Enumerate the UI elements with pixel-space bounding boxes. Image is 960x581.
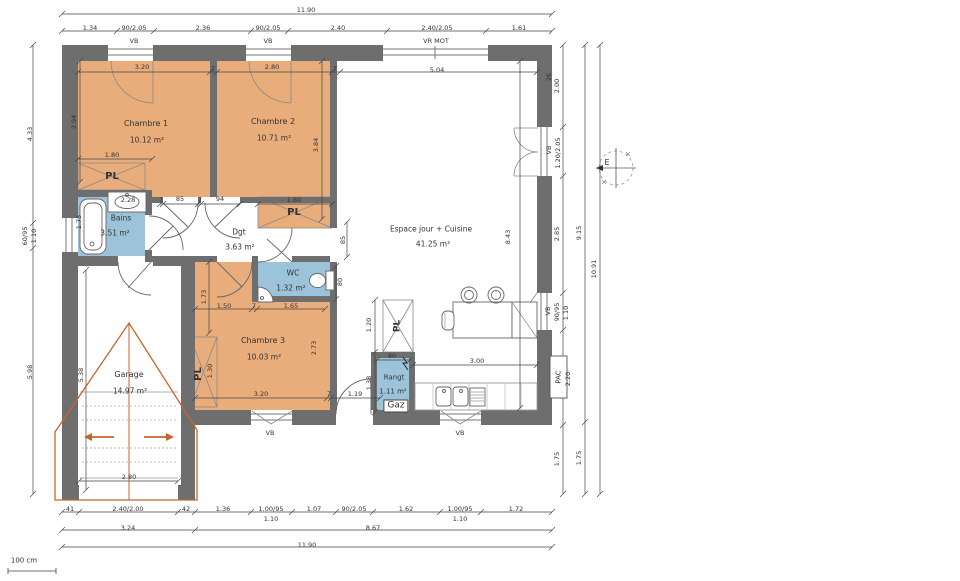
dim-wall7: 7 (211, 66, 215, 73)
dim-right-total: 10.91 (591, 260, 598, 279)
room-area-bains: 3.51 m² (100, 229, 129, 237)
dim-interior: 1.20 (366, 318, 373, 332)
dim-top: 2.36 (196, 25, 210, 32)
dim-interior: 3.00 (470, 358, 484, 365)
floor-plan-drawing (0, 0, 960, 581)
room-area-espace-jour: 41.25 m² (416, 240, 450, 248)
dim-bottom-door: 90/2.05 (342, 506, 367, 513)
toilet-tank (326, 271, 334, 290)
dim-right: 1.75 (554, 452, 561, 466)
dim-interior: 85 (340, 236, 347, 244)
dim-interior: 1.80 (287, 197, 301, 204)
dim-wall7: 7 (252, 303, 256, 310)
bar-stool (488, 287, 504, 303)
dim-right: 2.85 (554, 227, 561, 241)
dim-door: 94 (216, 196, 224, 203)
dim-interior: 1.19 (348, 391, 362, 398)
dim-top-window2: 90/2.05 (256, 25, 281, 32)
room-label-dgt: Dgt (232, 228, 245, 236)
bar-stool (461, 287, 477, 303)
dim-interior: 80 (388, 353, 396, 360)
dim-total-bottom: 11.90 (298, 542, 317, 549)
dim-interior: 80 (337, 278, 344, 286)
dim-wall26: 26 (546, 73, 553, 81)
dim-left-sill: 1.10 (31, 229, 38, 243)
room-label-chambre1: Chambre 1 (124, 120, 168, 128)
arrow-right-icon (166, 433, 174, 441)
dim-left: 5.98 (27, 365, 34, 379)
dim-bottom: 1.36 (216, 506, 230, 513)
dim-interior: 8.43 (505, 230, 512, 244)
compass-icon (596, 148, 636, 188)
dim-total-top: 11.90 (297, 7, 316, 14)
dim-interior: 2.94 (71, 115, 78, 129)
dim-top-window1: 90/2.05 (122, 25, 147, 32)
closet-label-pl3: PL (194, 367, 204, 381)
dim-interior: 1.50 (217, 303, 231, 310)
dim-bottom-garage-door: 2.40/2.00 (112, 506, 143, 513)
dim-interior: 1.80 (105, 152, 119, 159)
dim-interior: 1.65 (284, 303, 298, 310)
dim-interior: 1.38 (366, 376, 373, 390)
dim-bottom: 42 (182, 506, 190, 513)
closet-label-pl-entry: PL (394, 320, 403, 332)
dim-interior: 2.28 (121, 197, 135, 204)
closet-label-pl2: PL (287, 208, 301, 218)
dim-right: 1.75 (576, 451, 583, 465)
dim-interior: 3.84 (313, 138, 320, 152)
dim-wall7: 7 (333, 66, 337, 73)
room-label-rangt: Rangt (384, 375, 405, 382)
chair (442, 311, 454, 330)
dim-interior: 3.20 (135, 64, 149, 71)
dim-bottom-window: 1.00/95 (448, 506, 473, 513)
dim-wall7: 7 (198, 197, 202, 204)
dim-interior: 2.73 (311, 341, 318, 355)
scale-bar (8, 568, 56, 574)
dim-interior: 2.80 (265, 64, 279, 71)
dim-wall7: 7 (327, 391, 331, 398)
dim-bottom: 1.62 (399, 506, 413, 513)
compass-east-label: E (604, 159, 609, 167)
window-label-vrmot: VR MOT (423, 38, 449, 45)
pac-label: PAC (556, 370, 563, 383)
dim-interior: 1.73 (201, 290, 208, 304)
dim-interior: 1.30 (207, 364, 214, 378)
dim-door: 85 (176, 196, 184, 203)
window-label-vb1: VB (130, 38, 139, 45)
room-area-garage: 14.97 m² (113, 387, 147, 395)
closet-label-pl1: PL (105, 172, 119, 182)
window-label-vb-sejour: VB (546, 146, 553, 155)
dim-bottom-sill: 1.10 (264, 516, 278, 523)
room-area-chambre1: 10.12 m² (130, 136, 164, 144)
room-area-dgt: 3.63 m² (225, 243, 254, 251)
dim-bottom: 41 (66, 506, 74, 513)
kitchen-island (453, 302, 512, 338)
dim-interior: 1.75 (76, 215, 83, 229)
scale-bar-label: 100 cm (11, 558, 37, 565)
dim-bottom: 1.72 (509, 506, 523, 513)
dim-left: 4.33 (27, 127, 34, 141)
dim-right: 2.00 (554, 79, 561, 93)
room-area-chambre2: 10.71 m² (257, 134, 291, 142)
window-label-vb-kitchen: VB (545, 307, 552, 316)
room-label-wc: WC (287, 269, 300, 277)
toilet-bowl (310, 274, 326, 288)
dim-right-window: 90/95 (554, 303, 561, 322)
room-chambre2 (217, 61, 330, 197)
dim-right-window: 1.20/2.05 (555, 137, 562, 168)
room-label-espace-jour: Espace jour + Cuisine (390, 225, 472, 233)
room-label-chambre2: Chambre 2 (251, 118, 295, 126)
room-area-wc: 1.32 m² (276, 284, 305, 292)
window-label-vb2: VB (264, 38, 273, 45)
dim-bottom-window: 1.00/95 (259, 506, 284, 513)
dim-top: 1.34 (83, 25, 97, 32)
floor-plan-page: 11.901.3490/2.052.3690/2.052.402.40/2.05… (0, 0, 960, 581)
dim-top-window3: 2.40/2.05 (421, 25, 452, 32)
dim-bottom-sill: 1.10 (453, 516, 467, 523)
room-area-chambre3: 10.03 m² (247, 353, 281, 361)
dim-interior: 2.80 (122, 474, 136, 481)
window-label-vb-cuisine: VB (456, 430, 465, 437)
dim-interior: 5.38 (78, 368, 85, 382)
dim-bottom: 3.24 (121, 525, 135, 532)
dim-left-window: 60/95 (22, 227, 29, 246)
dim-bottom: 1.07 (307, 506, 321, 513)
room-label-garage: Garage (114, 371, 143, 379)
dim-interior: 5.04 (430, 67, 444, 74)
dim-bottom: 8.67 (366, 525, 380, 532)
dim-top: 1.61 (512, 25, 526, 32)
room-label-chambre3: Chambre 3 (241, 337, 285, 345)
dim-wall7: 7 (159, 197, 163, 204)
dim-right: 2.20 (565, 372, 572, 386)
room-area-rangt: 1.11 m² (379, 389, 406, 396)
room-label-bains: Bains (111, 214, 132, 222)
dim-right-sill: 1.10 (563, 306, 570, 320)
gaz-label: Gaz (383, 400, 408, 413)
window-label-vb-chambre3: VB (266, 430, 275, 437)
dishwasher (470, 388, 485, 406)
dim-right: 9.15 (576, 226, 583, 240)
arrow-left-icon (84, 433, 92, 441)
dim-interior: 3.20 (254, 391, 268, 398)
dim-top: 2.40 (331, 25, 345, 32)
